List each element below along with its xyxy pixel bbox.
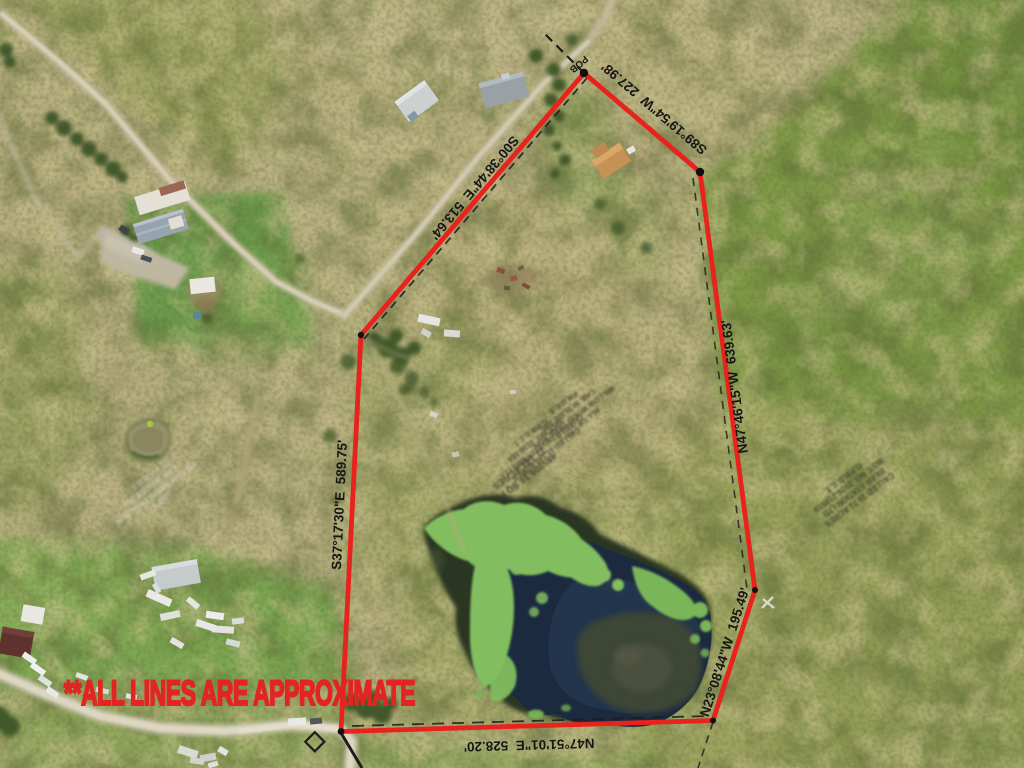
- svg-text:**ALL LINES ARE APPROXIMATE: **ALL LINES ARE APPROXIMATE: [64, 674, 415, 713]
